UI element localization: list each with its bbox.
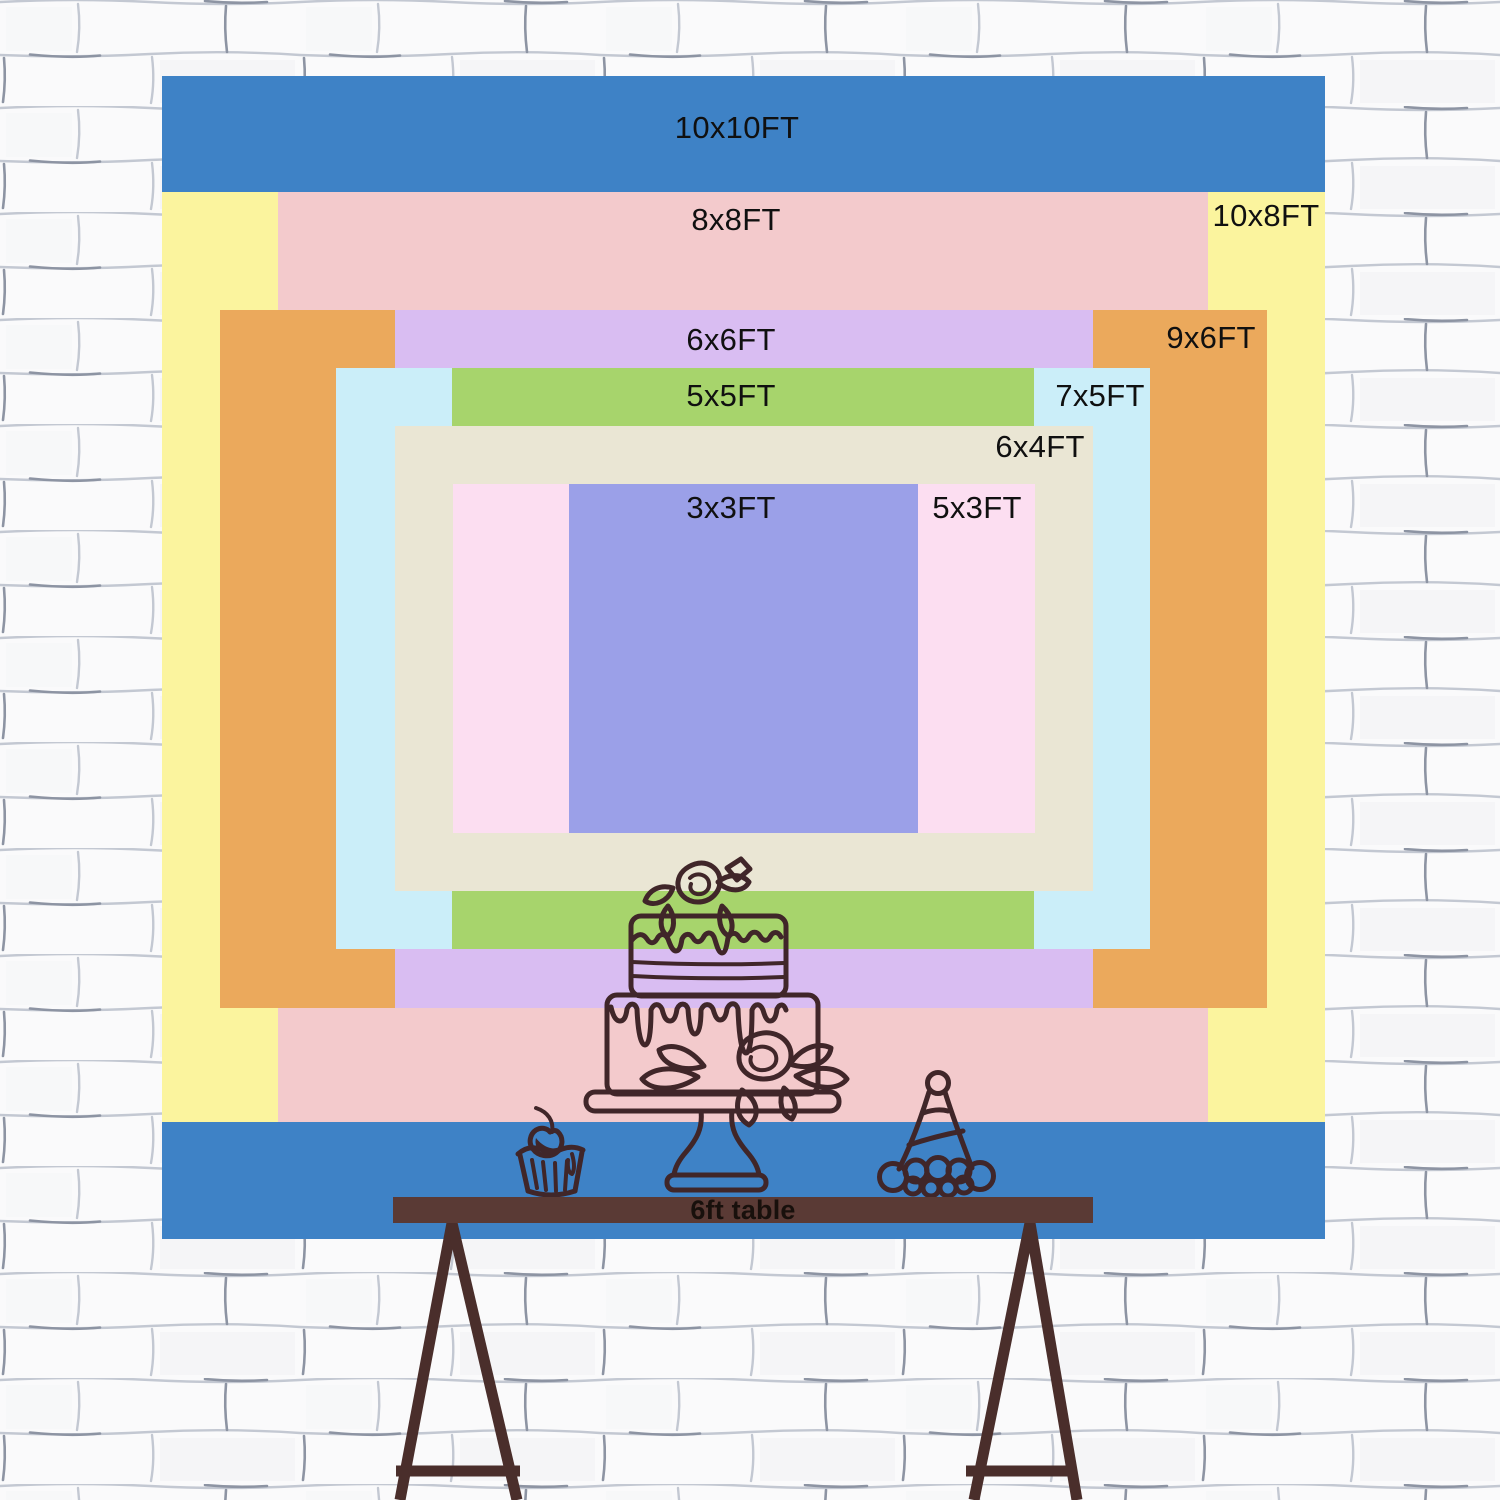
party-hat-icon: [880, 1073, 994, 1197]
size-rect-3x3ft: [569, 484, 918, 833]
size-label-6x4ft: 6x4FT: [995, 429, 1084, 465]
size-label-8x8ft: 8x8FT: [691, 202, 780, 238]
table-scene: [380, 840, 1120, 1500]
backdrop-size-chart: { "page": { "wall_base_color": "#fafafb"…: [0, 0, 1500, 1500]
birthday-cake-icon: [586, 859, 847, 1190]
cupcake-icon: [518, 1108, 583, 1195]
size-label-5x3ft: 5x3FT: [932, 490, 1021, 526]
size-label-10x8ft: 10x8FT: [1213, 198, 1320, 234]
size-label-9x6ft: 9x6FT: [1166, 320, 1255, 356]
table-size-label: 6ft table: [690, 1195, 795, 1226]
size-label-7x5ft: 7x5FT: [1055, 378, 1144, 414]
size-label-3x3ft: 3x3FT: [686, 490, 775, 526]
table-top: 6ft table: [393, 1197, 1093, 1223]
size-label-10x10ft: 10x10FT: [675, 110, 799, 146]
size-label-5x5ft: 5x5FT: [686, 378, 775, 414]
table-legs: [396, 1223, 1077, 1500]
size-label-6x6ft: 6x6FT: [686, 322, 775, 358]
